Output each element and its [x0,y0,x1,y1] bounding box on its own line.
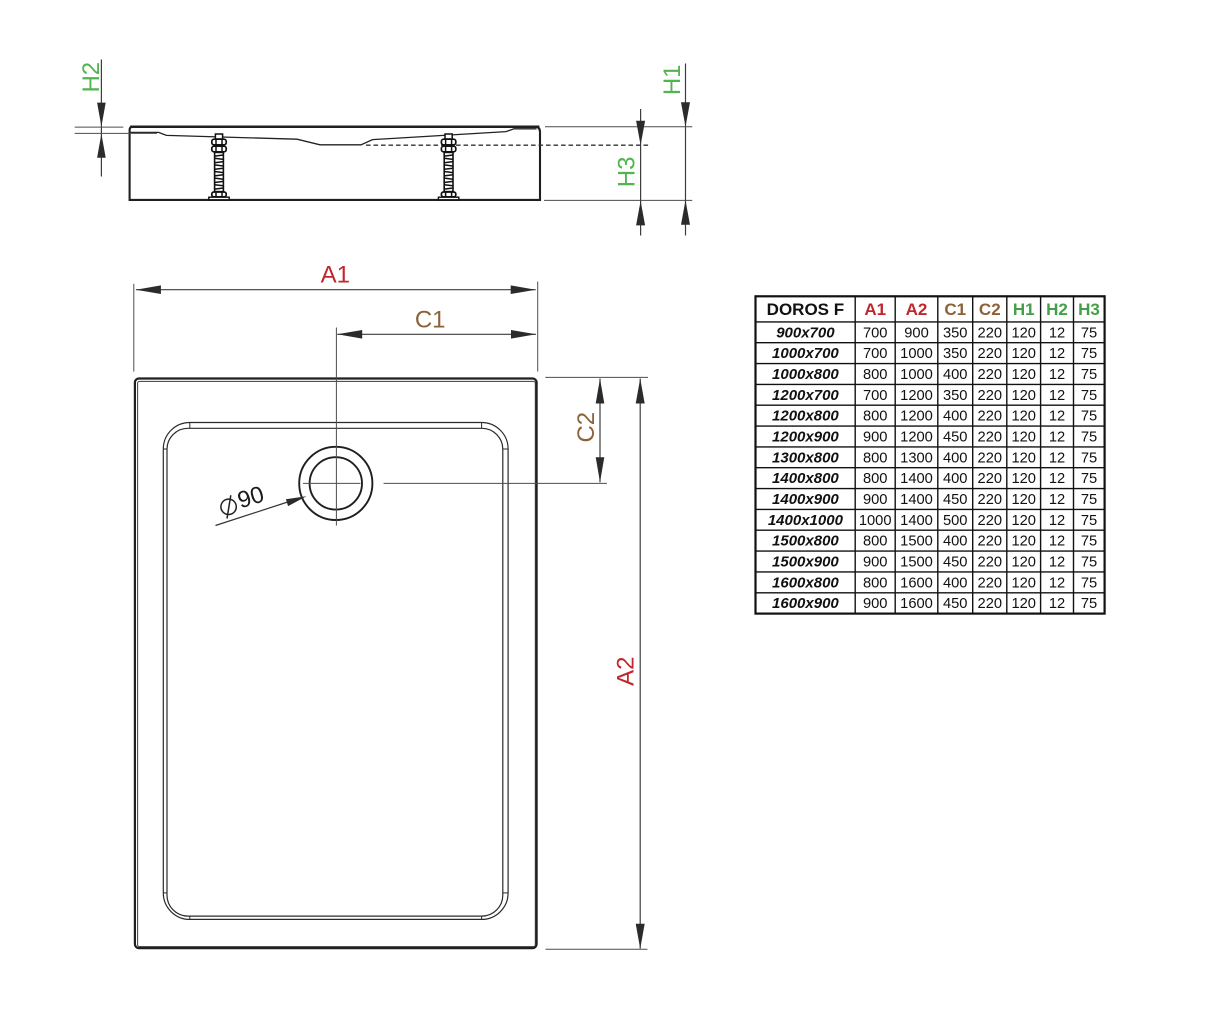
svg-text:500: 500 [943,513,968,529]
svg-text:800: 800 [863,575,888,591]
svg-text:1500: 1500 [900,534,933,550]
svg-text:1400x900: 1400x900 [772,491,839,508]
svg-text:400: 400 [943,450,968,466]
svg-text:900: 900 [863,492,888,508]
svg-text:120: 120 [1011,575,1036,591]
svg-text:900: 900 [863,430,888,446]
svg-text:1000x700: 1000x700 [772,345,839,362]
svg-text:120: 120 [1011,367,1036,383]
svg-text:1300x800: 1300x800 [772,449,839,466]
svg-text:220: 220 [978,388,1003,404]
svg-text:12: 12 [1049,430,1065,446]
svg-text:C1: C1 [944,300,966,319]
svg-text:12: 12 [1049,325,1065,341]
svg-text:1500x800: 1500x800 [772,533,839,550]
svg-text:12: 12 [1049,346,1065,362]
svg-text:220: 220 [978,450,1003,466]
svg-text:350: 350 [943,388,968,404]
svg-text:220: 220 [978,575,1003,591]
svg-text:C2: C2 [573,412,600,443]
svg-text:75: 75 [1081,534,1097,550]
svg-text:12: 12 [1049,596,1065,612]
svg-text:C1: C1 [415,306,446,333]
svg-text:120: 120 [1011,430,1036,446]
svg-text:220: 220 [978,325,1003,341]
svg-text:800: 800 [863,409,888,425]
svg-text:H1: H1 [1013,300,1035,319]
svg-text:12: 12 [1049,534,1065,550]
svg-text:75: 75 [1081,575,1097,591]
svg-text:400: 400 [943,534,968,550]
svg-text:900: 900 [863,555,888,571]
svg-text:450: 450 [943,555,968,571]
svg-text:800: 800 [863,534,888,550]
svg-text:220: 220 [978,346,1003,362]
svg-text:800: 800 [863,367,888,383]
svg-text:120: 120 [1011,409,1036,425]
svg-text:A1: A1 [321,262,350,289]
svg-text:75: 75 [1081,555,1097,571]
svg-text:75: 75 [1081,409,1097,425]
svg-text:1300: 1300 [900,450,933,466]
svg-text:220: 220 [978,513,1003,529]
svg-text:1000x800: 1000x800 [772,366,839,383]
svg-text:120: 120 [1011,388,1036,404]
svg-text:1200x700: 1200x700 [772,387,839,404]
svg-text:1200: 1200 [900,409,933,425]
svg-text:12: 12 [1049,367,1065,383]
svg-text:220: 220 [978,409,1003,425]
svg-text:120: 120 [1011,346,1036,362]
svg-text:1400: 1400 [900,492,933,508]
svg-text:400: 400 [943,367,968,383]
svg-text:C2: C2 [979,300,1001,319]
svg-text:12: 12 [1049,450,1065,466]
svg-text:H2: H2 [1046,300,1068,319]
svg-text:1200: 1200 [900,430,933,446]
svg-text:1400x800: 1400x800 [772,470,839,487]
svg-text:75: 75 [1081,513,1097,529]
svg-text:75: 75 [1081,430,1097,446]
svg-text:12: 12 [1049,471,1065,487]
svg-text:1200x800: 1200x800 [772,408,839,425]
svg-text:450: 450 [943,596,968,612]
svg-text:220: 220 [978,534,1003,550]
svg-text:450: 450 [943,430,968,446]
svg-text:1600x900: 1600x900 [772,595,839,612]
svg-text:1000: 1000 [900,346,933,362]
svg-text:120: 120 [1011,555,1036,571]
svg-text:12: 12 [1049,513,1065,529]
svg-text:H1: H1 [659,64,686,95]
svg-text:1500: 1500 [900,555,933,571]
svg-text:12: 12 [1049,388,1065,404]
svg-text:120: 120 [1011,513,1036,529]
svg-text:A1: A1 [864,300,886,319]
svg-text:1400: 1400 [900,471,933,487]
svg-text:1600x800: 1600x800 [772,574,839,591]
svg-text:350: 350 [943,346,968,362]
svg-text:220: 220 [978,555,1003,571]
svg-text:120: 120 [1011,471,1036,487]
svg-text:1400: 1400 [900,513,933,529]
svg-text:75: 75 [1081,471,1097,487]
svg-text:900: 900 [904,325,929,341]
svg-text:700: 700 [863,346,888,362]
svg-text:120: 120 [1011,534,1036,550]
svg-text:H3: H3 [614,157,641,188]
svg-text:220: 220 [978,596,1003,612]
svg-text:120: 120 [1011,450,1036,466]
svg-text:120: 120 [1011,492,1036,508]
svg-text:900: 900 [863,596,888,612]
svg-text:900x700: 900x700 [776,324,835,341]
svg-text:700: 700 [863,388,888,404]
svg-text:800: 800 [863,471,888,487]
svg-text:1000: 1000 [900,367,933,383]
svg-text:700: 700 [863,325,888,341]
svg-text:12: 12 [1049,492,1065,508]
svg-text:75: 75 [1081,492,1097,508]
svg-text:400: 400 [943,409,968,425]
svg-text:1600: 1600 [900,575,933,591]
svg-text:75: 75 [1081,367,1097,383]
svg-text:A2: A2 [613,657,640,686]
svg-text:12: 12 [1049,555,1065,571]
svg-text:A2: A2 [906,300,928,319]
svg-text:400: 400 [943,575,968,591]
svg-text:400: 400 [943,471,968,487]
svg-text:450: 450 [943,492,968,508]
svg-text:1600: 1600 [900,596,933,612]
svg-text:12: 12 [1049,575,1065,591]
svg-text:120: 120 [1011,325,1036,341]
svg-text:220: 220 [978,471,1003,487]
svg-text:350: 350 [943,325,968,341]
svg-text:1000: 1000 [859,513,892,529]
svg-text:800: 800 [863,450,888,466]
svg-text:220: 220 [978,367,1003,383]
svg-text:220: 220 [978,430,1003,446]
svg-text:75: 75 [1081,388,1097,404]
svg-text:12: 12 [1049,409,1065,425]
svg-text:75: 75 [1081,325,1097,341]
svg-text:75: 75 [1081,596,1097,612]
svg-text:1200: 1200 [900,388,933,404]
svg-text:1200x900: 1200x900 [772,429,839,446]
svg-text:120: 120 [1011,596,1036,612]
svg-text:H3: H3 [1078,300,1100,319]
svg-text:1400x1000: 1400x1000 [768,512,844,529]
svg-text:75: 75 [1081,450,1097,466]
svg-text:DOROS F: DOROS F [767,300,844,319]
svg-text:75: 75 [1081,346,1097,362]
svg-text:1500x900: 1500x900 [772,554,839,571]
svg-text:220: 220 [978,492,1003,508]
